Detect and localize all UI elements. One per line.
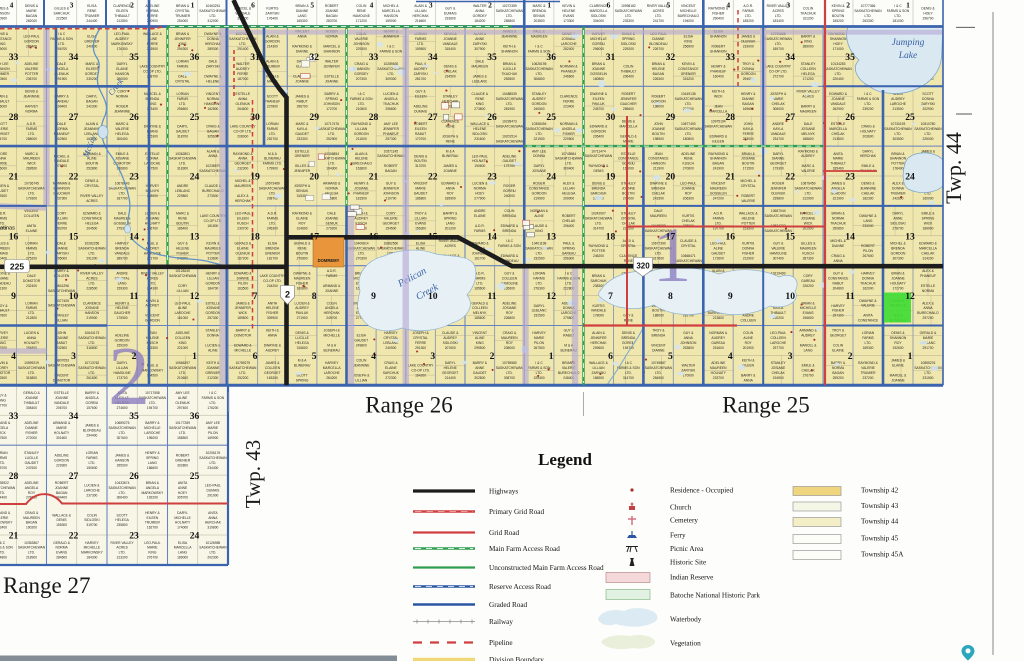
svg-text:ANNA: ANNA <box>238 157 248 161</box>
svg-text:POTTER: POTTER <box>592 249 606 253</box>
svg-text:JENNIFER: JENNIFER <box>383 127 400 131</box>
svg-text:DARYL: DARYL <box>534 304 545 308</box>
svg-text:12: 12 <box>905 291 915 302</box>
svg-text:LAROCHE: LAROCHE <box>144 431 161 435</box>
svg-text:LTD.: LTD. <box>775 42 782 46</box>
svg-text:164200: 164200 <box>415 374 426 378</box>
svg-text:FISHER: FISHER <box>296 281 309 285</box>
svg-text:ANGELA: ANGELA <box>0 426 9 430</box>
svg-text:CRAIG &: CRAIG & <box>206 124 220 128</box>
svg-text:270600: 270600 <box>683 167 694 171</box>
svg-text:10736745: 10736745 <box>24 182 39 186</box>
svg-text:JOSEPH &: JOSEPH & <box>412 331 429 335</box>
svg-text:BRIAN &: BRIAN & <box>176 32 190 36</box>
svg-text:29: 29 <box>666 112 676 123</box>
svg-text:COLIN: COLIN <box>623 65 634 69</box>
svg-text:ADELINE: ADELINE <box>24 62 39 66</box>
svg-text:5: 5 <box>312 351 317 362</box>
svg-text:LTD.: LTD. <box>28 311 35 315</box>
svg-text:ANNA: ANNA <box>446 187 456 191</box>
svg-text:CO-OP LTD.: CO-OP LTD. <box>411 369 430 373</box>
svg-text:ACRES: ACRES <box>86 276 98 280</box>
svg-text:27: 27 <box>785 112 795 123</box>
svg-text:HOEY: HOEY <box>833 42 843 46</box>
svg-text:HELENE: HELENE <box>206 80 220 84</box>
svg-text:LEO-PAUL: LEO-PAUL <box>175 301 191 305</box>
svg-text:LTD.: LTD. <box>565 281 572 285</box>
svg-text:244200: 244200 <box>267 284 278 288</box>
svg-text:206400: 206400 <box>623 75 634 79</box>
svg-text:M & A: M & A <box>446 149 456 153</box>
svg-text:GORDON: GORDON <box>741 72 756 76</box>
svg-text:NORMA: NORMA <box>922 289 935 293</box>
svg-text:CO-OP LTD.: CO-OP LTD. <box>263 279 282 283</box>
svg-text:CHELAK: CHELAK <box>444 70 458 74</box>
svg-text:242300: 242300 <box>86 104 97 108</box>
svg-text:A.D.R.: A.D.R. <box>27 122 37 126</box>
svg-text:DARYL: DARYL <box>117 62 128 66</box>
svg-text:231500: 231500 <box>922 376 933 380</box>
svg-text:HELENE: HELENE <box>562 9 576 13</box>
svg-text:GUY &: GUY & <box>623 314 634 318</box>
svg-text:GAUDET: GAUDET <box>0 189 8 193</box>
svg-text:ALAIN &: ALAIN & <box>86 122 99 126</box>
svg-text:ZARYSKI: ZARYSKI <box>414 72 428 76</box>
svg-text:231600: 231600 <box>474 137 485 141</box>
svg-text:COLIN: COLIN <box>743 331 754 335</box>
svg-text:LTD.: LTD. <box>805 192 812 196</box>
svg-text:LILLIAN: LILLIAN <box>177 289 190 293</box>
svg-text:MARIE: MARIE <box>773 97 784 101</box>
svg-text:10599219: 10599219 <box>24 361 39 365</box>
svg-text:ADELINE: ADELINE <box>502 301 517 305</box>
svg-text:MARIE: MARIE <box>623 139 634 143</box>
svg-text:MARIE: MARIE <box>923 336 934 340</box>
svg-text:BRIAN &: BRIAN & <box>295 4 309 8</box>
svg-text:232500: 232500 <box>56 346 67 350</box>
svg-text:305400: 305400 <box>117 137 128 141</box>
svg-text:201900: 201900 <box>743 346 754 350</box>
svg-text:POTTER: POTTER <box>742 222 756 226</box>
svg-text:ROY: ROY <box>745 341 753 345</box>
svg-text:LTD.: LTD. <box>179 371 186 375</box>
svg-text:HANSON: HANSON <box>115 458 130 462</box>
svg-text:169300: 169300 <box>862 346 873 350</box>
svg-text:10134283: 10134283 <box>831 62 846 66</box>
svg-text:JENNIFER: JENNIFER <box>383 187 400 191</box>
svg-text:LTD.: LTD. <box>595 222 602 226</box>
svg-text:JENNIFER: JENNIFER <box>235 306 252 310</box>
svg-text:289700: 289700 <box>117 256 128 260</box>
svg-text:ROGER: ROGER <box>503 184 516 188</box>
svg-text:190200: 190200 <box>26 526 37 530</box>
svg-text:25: 25 <box>190 471 200 482</box>
svg-text:RENE: RENE <box>624 319 634 323</box>
svg-text:GAUDET: GAUDET <box>295 132 309 136</box>
svg-text:MICHELLE: MICHELLE <box>144 426 161 430</box>
svg-text:16: 16 <box>369 231 379 242</box>
svg-text:AMY LEE: AMY LEE <box>206 421 221 425</box>
svg-text:GORDON: GORDON <box>532 102 547 106</box>
svg-text:CRAIG &: CRAIG & <box>503 331 517 335</box>
svg-text:LEBLANC: LEBLANC <box>472 80 488 84</box>
svg-text:271900: 271900 <box>297 316 308 320</box>
svg-text:FERRE: FERRE <box>56 222 68 226</box>
svg-text:DWAYNE &: DWAYNE & <box>590 92 608 96</box>
svg-text:EILEEN: EILEEN <box>712 139 724 143</box>
svg-text:GORDON: GORDON <box>145 319 160 323</box>
svg-text:ANNA: ANNA <box>208 516 218 520</box>
svg-text:Church: Church <box>670 504 692 512</box>
svg-text:SASKATCHEWAN: SASKATCHEWAN <box>824 67 852 71</box>
svg-text:152500: 152500 <box>534 314 545 318</box>
svg-text:COLLEEN: COLLEEN <box>502 276 518 280</box>
svg-text:HELENE: HELENE <box>115 306 129 310</box>
svg-text:CORY: CORY <box>386 212 396 216</box>
svg-text:LORIAN: LORIAN <box>0 451 8 455</box>
svg-text:CRYSTAL: CRYSTAL <box>175 9 190 13</box>
svg-text:BARRY &: BARRY & <box>801 35 816 39</box>
svg-text:VALERIE: VALERIE <box>0 516 9 520</box>
svg-text:10238579: 10238579 <box>206 164 221 168</box>
svg-text:DIANNE: DIANNE <box>652 37 665 41</box>
svg-text:SASKATCHEWAN: SASKATCHEWAN <box>525 246 553 250</box>
svg-text:289000: 289000 <box>803 45 814 49</box>
svg-text:225000: 225000 <box>922 137 933 141</box>
svg-text:KUSCH: KUSCH <box>802 251 814 255</box>
svg-text:HENRY &: HENRY & <box>711 65 726 69</box>
svg-text:10713762: 10713762 <box>85 361 100 365</box>
svg-text:ZARYSKI: ZARYSKI <box>206 65 220 69</box>
svg-text:247600: 247600 <box>26 466 37 470</box>
svg-text:206000: 206000 <box>237 134 248 138</box>
svg-text:Primary Grid Road: Primary Grid Road <box>489 508 545 516</box>
svg-text:I & C: I & C <box>506 239 514 243</box>
svg-text:GERALD &: GERALD & <box>471 301 488 305</box>
svg-text:ARMAND &: ARMAND & <box>323 182 341 186</box>
svg-text:HELEGA: HELEGA <box>115 132 129 136</box>
svg-text:BAGAN: BAGAN <box>713 162 725 166</box>
svg-text:ELISA: ELISA <box>268 242 278 246</box>
svg-text:BAGAN: BAGAN <box>86 99 98 103</box>
svg-text:LORIAN: LORIAN <box>266 122 279 126</box>
svg-text:ANDRE: ANDRE <box>116 271 128 275</box>
svg-text:294400: 294400 <box>86 433 97 437</box>
svg-text:JOSIANE: JOSIANE <box>0 276 9 280</box>
svg-text:194700: 194700 <box>623 346 634 350</box>
svg-text:JOANNE: JOANNE <box>325 217 339 221</box>
svg-text:32: 32 <box>666 52 676 63</box>
svg-text:HERCHAK: HERCHAK <box>413 14 430 18</box>
svg-text:SCOTT: SCOTT <box>117 513 128 517</box>
svg-text:SASKATCHEWAN: SASKATCHEWAN <box>555 157 583 161</box>
svg-text:ROGER: ROGER <box>533 182 546 186</box>
svg-text:RENE: RENE <box>298 246 308 250</box>
svg-text:206700: 206700 <box>56 47 67 51</box>
svg-text:17: 17 <box>666 231 676 242</box>
svg-text:GUY &: GUY & <box>0 394 7 398</box>
svg-text:10306854: 10306854 <box>324 152 339 156</box>
svg-text:AUDREY: AUDREY <box>236 67 251 71</box>
svg-text:6: 6 <box>251 1 255 10</box>
svg-text:WICK: WICK <box>924 222 933 226</box>
svg-text:WALLACE &: WALLACE & <box>739 212 759 216</box>
svg-text:HARVEY: HARVEY <box>25 104 39 108</box>
svg-text:278700: 278700 <box>892 227 903 231</box>
svg-text:JOSIANE: JOSIANE <box>532 169 547 173</box>
svg-text:154500: 154500 <box>385 227 396 231</box>
svg-text:EDWARD &: EDWARD & <box>234 271 252 275</box>
svg-text:ALAIN &: ALAIN & <box>355 152 368 156</box>
svg-text:181000: 181000 <box>892 19 903 23</box>
svg-text:LUCIEN &: LUCIEN & <box>24 331 40 335</box>
svg-text:OLENIUK: OLENIUK <box>236 251 251 255</box>
svg-text:BLONDEAU: BLONDEAU <box>83 428 102 432</box>
svg-text:JOHNSON: JOHNSON <box>383 192 400 196</box>
svg-text:ELAINE: ELAINE <box>116 67 129 71</box>
svg-text:BAGAN: BAGAN <box>26 14 38 18</box>
svg-text:LEO-PAUL: LEO-PAUL <box>472 154 488 158</box>
svg-text:TRUMIER: TRUMIER <box>890 192 906 196</box>
svg-text:312000: 312000 <box>207 19 218 23</box>
svg-text:272300: 272300 <box>385 376 396 380</box>
svg-text:LTD.: LTD. <box>28 192 35 196</box>
svg-text:HOLNATY: HOLNATY <box>175 521 191 525</box>
svg-text:DIANNE: DIANNE <box>832 244 845 248</box>
svg-text:ELAINE: ELAINE <box>832 349 845 353</box>
svg-text:Unconstructed Main Farm Access: Unconstructed Main Farm Access Road <box>489 564 604 572</box>
svg-text:GUY &: GUY & <box>386 182 397 186</box>
svg-text:212900: 212900 <box>743 256 754 260</box>
svg-text:SHANNON: SHANNON <box>710 157 727 161</box>
svg-text:CRYSTAL: CRYSTAL <box>621 217 636 221</box>
svg-text:THIBAULT: THIBAULT <box>0 309 9 313</box>
svg-text:GUY &: GUY & <box>504 271 515 275</box>
svg-text:DALE: DALE <box>118 212 127 216</box>
svg-text:CRYSTAL: CRYSTAL <box>741 184 756 188</box>
svg-text:ANNA: ANNA <box>268 334 278 338</box>
svg-text:HARVEY: HARVEY <box>831 304 845 308</box>
svg-text:HENRY &: HENRY & <box>741 92 756 96</box>
svg-text:ANNA: ANNA <box>298 35 308 39</box>
svg-text:252800: 252800 <box>86 167 97 171</box>
svg-text:272700: 272700 <box>773 75 784 79</box>
svg-text:10177289: 10177289 <box>175 421 190 425</box>
svg-text:MICHEL &: MICHEL & <box>740 179 756 183</box>
svg-text:ADELINE: ADELINE <box>502 154 517 158</box>
svg-text:JENNIFER: JENNIFER <box>620 97 637 101</box>
svg-text:JAMES &: JAMES & <box>115 453 130 457</box>
svg-text:EVANS: EVANS <box>803 311 815 315</box>
svg-text:JOANNE: JOANNE <box>325 80 339 84</box>
svg-text:KEVIN &: KEVIN & <box>0 361 9 365</box>
svg-text:WICK: WICK <box>27 162 36 166</box>
svg-text:A.D.R.: A.D.R. <box>327 269 337 273</box>
svg-text:LEO-PAUL: LEO-PAUL <box>680 182 696 186</box>
svg-text:3: 3 <box>430 351 435 362</box>
svg-text:ALINE: ALINE <box>178 396 188 400</box>
svg-text:LUCIEN &: LUCIEN & <box>84 483 100 487</box>
svg-text:VANDALE: VANDALE <box>115 251 131 255</box>
svg-text:AUDREY: AUDREY <box>711 336 726 340</box>
svg-text:CLARENCE: CLARENCE <box>83 301 102 305</box>
svg-text:A.D.R.: A.D.R. <box>713 212 723 216</box>
svg-text:10678043: 10678043 <box>115 182 130 186</box>
svg-text:KAYLA: KAYLA <box>743 127 754 131</box>
svg-text:HELEGA: HELEGA <box>801 72 815 76</box>
svg-text:NORMA: NORMA <box>207 97 220 101</box>
svg-text:FARMS: FARMS <box>0 217 8 221</box>
svg-text:ELISA: ELISA <box>684 35 694 39</box>
svg-text:28: 28 <box>726 112 736 123</box>
svg-text:187700: 187700 <box>117 197 128 201</box>
svg-text:Historic Site: Historic Site <box>670 559 706 567</box>
svg-text:PHANEUF: PHANEUF <box>353 192 369 196</box>
svg-text:GRENIER: GRENIER <box>295 154 311 158</box>
svg-text:34: 34 <box>785 52 795 63</box>
svg-text:GORElU: GORElU <box>503 189 516 193</box>
svg-text:HERCHAK: HERCHAK <box>235 199 252 203</box>
svg-text:HELEGA: HELEGA <box>562 192 576 196</box>
svg-text:LANG: LANG <box>864 219 873 223</box>
svg-text:BURECHAILO: BURECHAILO <box>351 162 373 166</box>
svg-text:GRENIER: GRENIER <box>681 72 697 76</box>
svg-text:Township 45: Township 45 <box>861 535 899 543</box>
svg-text:213200: 213200 <box>117 556 128 560</box>
svg-text:FARMS: FARMS <box>862 336 874 340</box>
svg-text:THIBAULT: THIBAULT <box>0 99 9 103</box>
svg-text:314200: 314200 <box>922 256 933 260</box>
svg-text:HOEY: HOEY <box>475 192 485 196</box>
svg-text:JOANNE: JOANNE <box>295 80 309 84</box>
svg-text:RAYMOND &: RAYMOND & <box>233 152 254 156</box>
svg-text:POTTER: POTTER <box>206 251 220 255</box>
svg-text:ESTELLE: ESTELLE <box>54 391 69 395</box>
svg-text:GRENIER: GRENIER <box>84 40 100 44</box>
svg-text:27: 27 <box>69 112 79 123</box>
svg-text:14: 14 <box>487 231 497 242</box>
svg-text:2: 2 <box>846 1 850 10</box>
svg-text:31: 31 <box>606 52 616 63</box>
svg-text:PILON: PILON <box>208 431 219 435</box>
svg-text:BARRY &: BARRY & <box>801 104 816 108</box>
svg-text:RAYMOND &: RAYMOND & <box>858 361 879 365</box>
svg-text:26: 26 <box>845 112 855 123</box>
svg-text:1: 1 <box>908 351 913 362</box>
svg-text:ACRES: ACRES <box>653 9 665 13</box>
svg-text:180800: 180800 <box>593 77 604 81</box>
svg-text:ELAINE: ELAINE <box>296 217 309 221</box>
svg-text:276700: 276700 <box>147 556 158 560</box>
svg-text:206700: 206700 <box>56 406 67 410</box>
svg-text:HARVEY: HARVEY <box>325 361 339 365</box>
svg-text:192600: 192600 <box>892 346 903 350</box>
svg-text:270800: 270800 <box>297 256 308 260</box>
svg-text:273800: 273800 <box>474 107 485 111</box>
svg-text:RENE: RENE <box>446 124 456 128</box>
svg-text:282400: 282400 <box>563 47 574 51</box>
svg-text:NORMA: NORMA <box>55 546 68 550</box>
svg-text:296700: 296700 <box>297 104 308 108</box>
svg-text:DUMAIS: DUMAIS <box>444 11 458 15</box>
svg-text:AUDREY: AUDREY <box>266 349 281 353</box>
svg-text:FARMS: FARMS <box>713 217 725 221</box>
svg-text:26: 26 <box>487 112 497 123</box>
svg-text:174000: 174000 <box>177 526 188 530</box>
svg-text:LTD.: LTD. <box>209 461 216 465</box>
svg-text:CLARENCE: CLARENCE <box>560 95 579 99</box>
svg-text:283700: 283700 <box>56 227 67 231</box>
svg-text:LAKE COUNTRY: LAKE COUNTRY <box>765 65 791 69</box>
svg-text:LEO-PAUL: LEO-PAUL <box>235 212 251 216</box>
svg-text:DALE: DALE <box>327 212 336 216</box>
svg-text:212900: 212900 <box>803 197 814 201</box>
svg-text:KING: KING <box>804 40 812 44</box>
svg-text:MICHELLE: MICHELLE <box>323 334 340 338</box>
svg-text:ANDRE: ANDRE <box>177 184 189 188</box>
svg-text:SIDLOSKI: SIDLOSKI <box>84 518 99 522</box>
svg-text:MAUREEN: MAUREEN <box>205 246 222 250</box>
svg-text:159500: 159500 <box>415 47 426 51</box>
svg-text:Twp. 44: Twp. 44 <box>941 132 966 204</box>
svg-text:HANSON: HANSON <box>384 14 399 18</box>
svg-text:LTD.: LTD. <box>179 431 186 435</box>
svg-text:CRAIG &: CRAIG & <box>384 361 398 365</box>
svg-text:21: 21 <box>726 172 736 183</box>
svg-text:4: 4 <box>371 351 376 362</box>
svg-text:10433674: 10433674 <box>115 481 130 485</box>
svg-text:STANLEY: STANLEY <box>532 92 548 96</box>
svg-text:FARMS: FARMS <box>743 9 755 13</box>
svg-text:COLLEEN: COLLEEN <box>740 319 756 323</box>
svg-text:ANITA: ANITA <box>208 511 218 515</box>
svg-text:ROY: ROY <box>447 192 455 196</box>
svg-text:BURECHAILO: BURECHAILO <box>678 14 700 18</box>
svg-text:DIANNE: DIANNE <box>296 9 309 13</box>
svg-text:206300: 206300 <box>683 197 694 201</box>
svg-text:CHELAK: CHELAK <box>921 251 935 255</box>
svg-text:189000: 189000 <box>177 556 188 560</box>
svg-text:DOMREMY: DOMREMY <box>318 258 340 263</box>
svg-text:HELEGA: HELEGA <box>295 341 309 345</box>
svg-text:171000: 171000 <box>833 47 844 51</box>
svg-text:ANNA: ANNA <box>744 379 754 383</box>
svg-text:SASKATCHEWAN: SASKATCHEWAN <box>0 486 16 490</box>
svg-text:SASKATCHEWAN: SASKATCHEWAN <box>525 127 553 131</box>
svg-text:KURTIS: KURTIS <box>266 7 279 11</box>
svg-text:GORElU: GORElU <box>85 401 98 405</box>
svg-text:259200: 259200 <box>833 376 844 380</box>
svg-text:SASKATCHEWAN: SASKATCHEWAN <box>199 456 227 460</box>
svg-text:296400: 296400 <box>563 224 574 228</box>
svg-text:13: 13 <box>190 231 200 242</box>
svg-text:ARMAND &: ARMAND & <box>0 511 11 515</box>
svg-text:CRYSTAL: CRYSTAL <box>84 184 99 188</box>
svg-text:LTD.: LTD. <box>895 132 902 136</box>
svg-text:LORIAN: LORIAN <box>862 331 875 335</box>
svg-text:Ferry: Ferry <box>670 532 686 540</box>
svg-text:222500: 222500 <box>56 16 67 20</box>
svg-text:DENIS &: DENIS & <box>921 7 935 11</box>
svg-text:GERALD &: GERALD & <box>23 391 40 395</box>
svg-text:JENNIFER: JENNIFER <box>175 37 192 41</box>
svg-text:GAUDET: GAUDET <box>354 339 368 343</box>
svg-text:GILLES &: GILLES & <box>54 7 69 11</box>
svg-text:PILON: PILON <box>238 281 249 285</box>
svg-text:GORDON: GORDON <box>891 251 906 255</box>
svg-text:291900: 291900 <box>207 493 218 497</box>
svg-text:10401198: 10401198 <box>532 242 547 246</box>
